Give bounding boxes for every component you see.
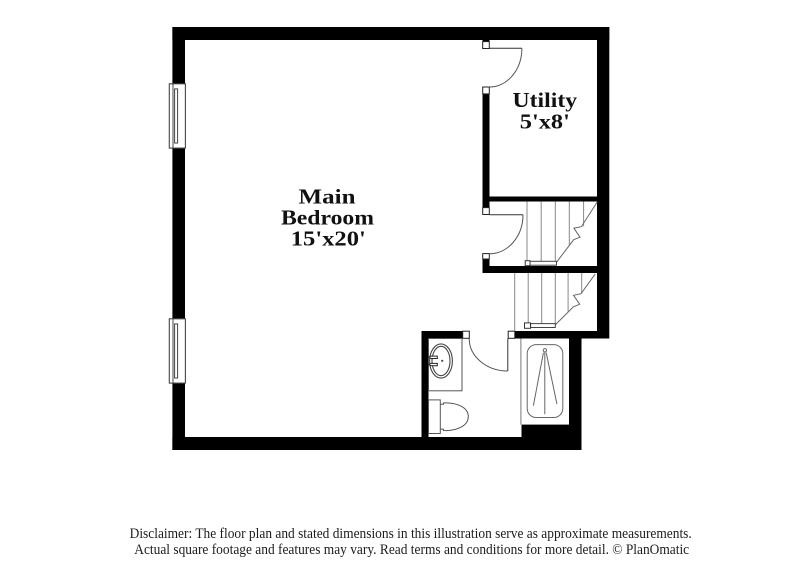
svg-text:Bedroom: Bedroom [281, 206, 374, 229]
svg-text:5'x8': 5'x8' [520, 110, 570, 133]
svg-text:Actual square footage and feat: Actual square footage and features may v… [134, 541, 689, 558]
svg-text:Utility: Utility [513, 88, 578, 111]
svg-text:15'x20': 15'x20' [291, 227, 366, 250]
svg-text:Disclaimer: The floor plan and: Disclaimer: The floor plan and stated di… [130, 525, 692, 542]
